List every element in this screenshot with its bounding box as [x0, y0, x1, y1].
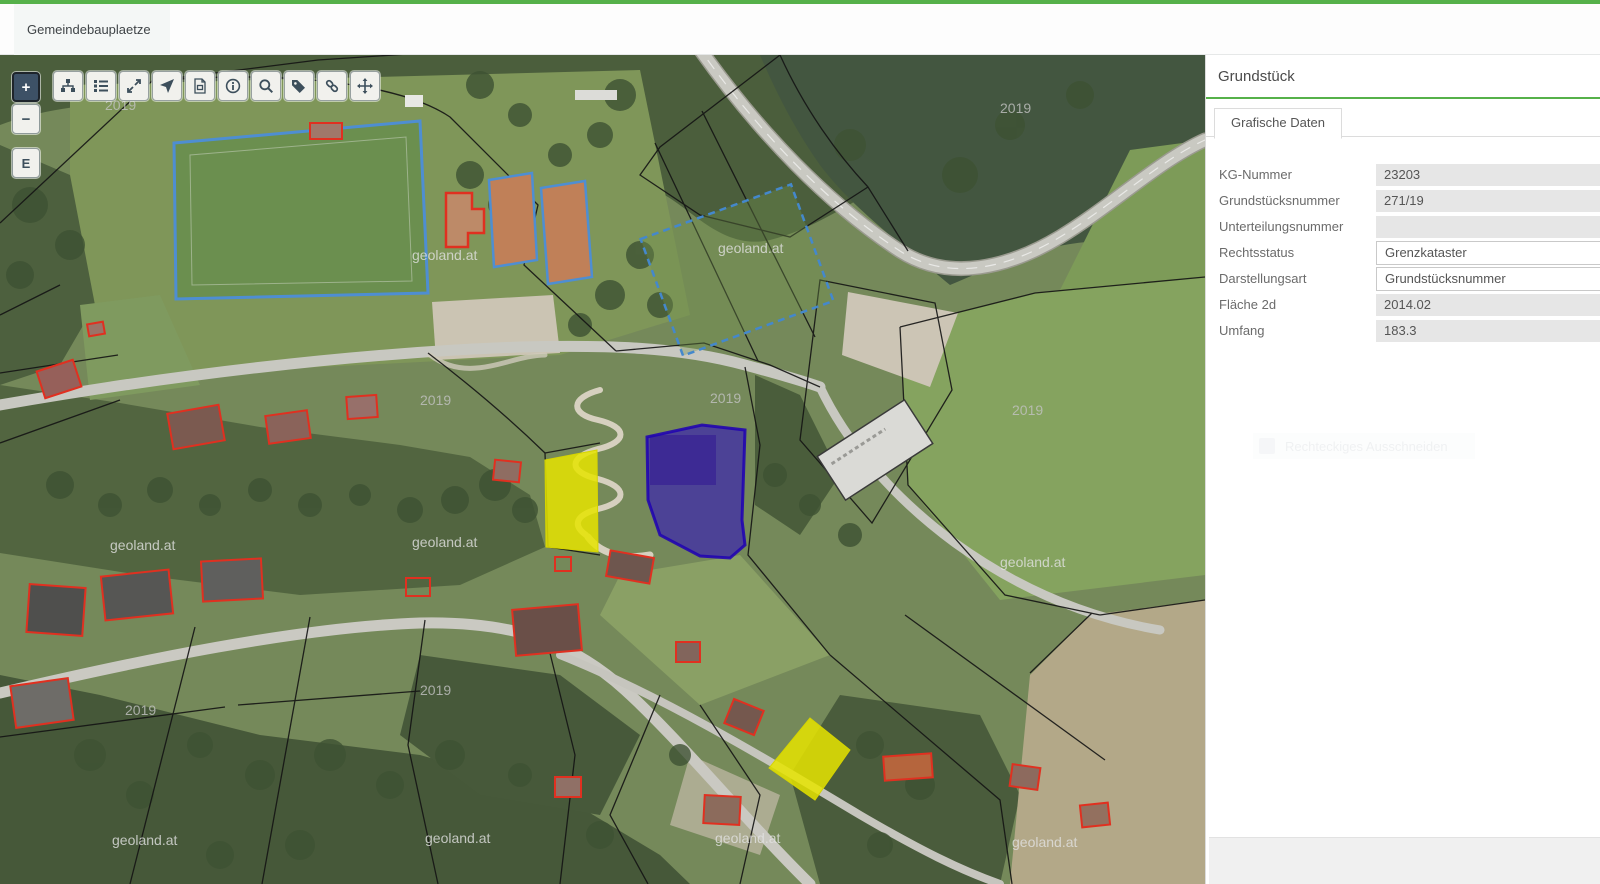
panel-footer [1209, 837, 1600, 884]
field-label-grundstuecksnummer: Grundstücksnummer [1219, 189, 1340, 213]
tab-label: Gemeindebauplaetze [27, 22, 151, 37]
detail-panel: Grundstück Grafische Daten KG-Nummer2320… [1205, 55, 1600, 884]
field-label-darstellungsart: Darstellungsart [1219, 267, 1306, 291]
panel-accent-underline [1206, 97, 1600, 99]
field-row-unterteilungsnummer: Unterteilungsnummer [1219, 215, 1600, 241]
top-bar: Gemeindebauplaetze [0, 0, 1600, 55]
tag-icon [291, 78, 307, 94]
field-row-kg-nummer: KG-Nummer23203 [1219, 163, 1600, 189]
svg-text:geoland.at: geoland.at [1000, 554, 1066, 570]
svg-text:2019: 2019 [1012, 402, 1043, 418]
edit-mode-button[interactable]: E [12, 148, 40, 178]
resize-icon [126, 78, 142, 94]
svg-text:2019: 2019 [420, 392, 451, 408]
field-input-kg-nummer: 23203 [1376, 164, 1600, 186]
aerial-basemap: 2019 2019 2019 2019 2019 2019 2019 geola… [0, 55, 1205, 884]
pdf-export-icon [192, 78, 208, 94]
field-row-umfang: Umfang183.3 [1219, 319, 1600, 345]
location-arrow-tool-button[interactable] [152, 71, 182, 101]
map-viewport[interactable]: 2019 2019 2019 2019 2019 2019 2019 geola… [0, 55, 1205, 884]
move-tool-button[interactable] [350, 71, 380, 101]
field-row-flaeche-2d: Fläche 2d2014.02 [1219, 293, 1600, 319]
field-input-darstellungsart[interactable]: Grundstücksnummer [1376, 267, 1600, 291]
pdf-export-tool-button[interactable] [185, 71, 215, 101]
list-icon [93, 78, 109, 94]
field-input-umfang: 183.3 [1376, 320, 1600, 342]
field-row-darstellungsart: DarstellungsartGrundstücksnummer [1219, 267, 1600, 293]
field-input-flaeche-2d: 2014.02 [1376, 294, 1600, 316]
svg-text:geoland.at: geoland.at [1012, 834, 1078, 850]
svg-text:2019: 2019 [125, 702, 156, 718]
zoom-out-button[interactable]: − [12, 104, 40, 134]
field-label-umfang: Umfang [1219, 319, 1265, 343]
move-icon [357, 78, 373, 94]
tag-tool-button[interactable] [284, 71, 314, 101]
svg-text:geoland.at: geoland.at [412, 534, 478, 550]
ghost-icon [1259, 438, 1275, 454]
tab-grafische-daten-label: Grafische Daten [1231, 115, 1325, 130]
sitemap-tool-button[interactable] [53, 71, 83, 101]
fading-ghost-control: Rechteckiges Ausschneiden [1253, 433, 1475, 459]
app-window: Gemeindebauplaetze [0, 0, 1600, 884]
field-row-grundstuecksnummer: Grundstücksnummer271/19 [1219, 189, 1600, 215]
search-tool-button[interactable] [251, 71, 281, 101]
zoom-in-button[interactable]: + [12, 72, 40, 102]
info-tool-button[interactable] [218, 71, 248, 101]
svg-text:geoland.at: geoland.at [112, 832, 178, 848]
tab-gemeindebauplaetze[interactable]: Gemeindebauplaetze [14, 4, 170, 55]
info-icon [225, 78, 241, 94]
field-row-rechtsstatus: RechtsstatusGrenzkataster [1219, 241, 1600, 267]
svg-text:geoland.at: geoland.at [718, 240, 784, 256]
sitemap-icon [60, 78, 76, 94]
svg-text:2019: 2019 [710, 390, 741, 406]
field-label-flaeche-2d: Fläche 2d [1219, 293, 1276, 317]
accent-strip [0, 0, 1600, 4]
location-arrow-icon [159, 78, 175, 94]
ghost-label: Rechteckiges Ausschneiden [1285, 439, 1448, 454]
link-icon [324, 78, 340, 94]
svg-text:2019: 2019 [420, 682, 451, 698]
field-input-grundstuecksnummer: 271/19 [1376, 190, 1600, 212]
svg-text:geoland.at: geoland.at [715, 830, 781, 846]
svg-text:2019: 2019 [1000, 100, 1031, 116]
panel-tabs: Grafische Daten [1206, 108, 1600, 137]
link-tool-button[interactable] [317, 71, 347, 101]
svg-text:geoland.at: geoland.at [425, 830, 491, 846]
field-label-kg-nummer: KG-Nummer [1219, 163, 1292, 187]
search-icon [258, 78, 274, 94]
svg-text:geoland.at: geoland.at [412, 247, 478, 263]
svg-text:geoland.at: geoland.at [110, 537, 176, 553]
panel-title: Grundstück [1218, 68, 1295, 85]
attribute-form: KG-Nummer23203Grundstücksnummer271/19Unt… [1219, 163, 1600, 345]
resize-tool-button[interactable] [119, 71, 149, 101]
field-label-rechtsstatus: Rechtsstatus [1219, 241, 1294, 265]
map-toolbar [53, 71, 380, 101]
tab-grafische-daten[interactable]: Grafische Daten [1214, 108, 1342, 139]
field-input-rechtsstatus[interactable]: Grenzkataster [1376, 241, 1600, 265]
list-tool-button[interactable] [86, 71, 116, 101]
field-label-unterteilungsnummer: Unterteilungsnummer [1219, 215, 1343, 239]
field-input-unterteilungsnummer [1376, 216, 1600, 238]
